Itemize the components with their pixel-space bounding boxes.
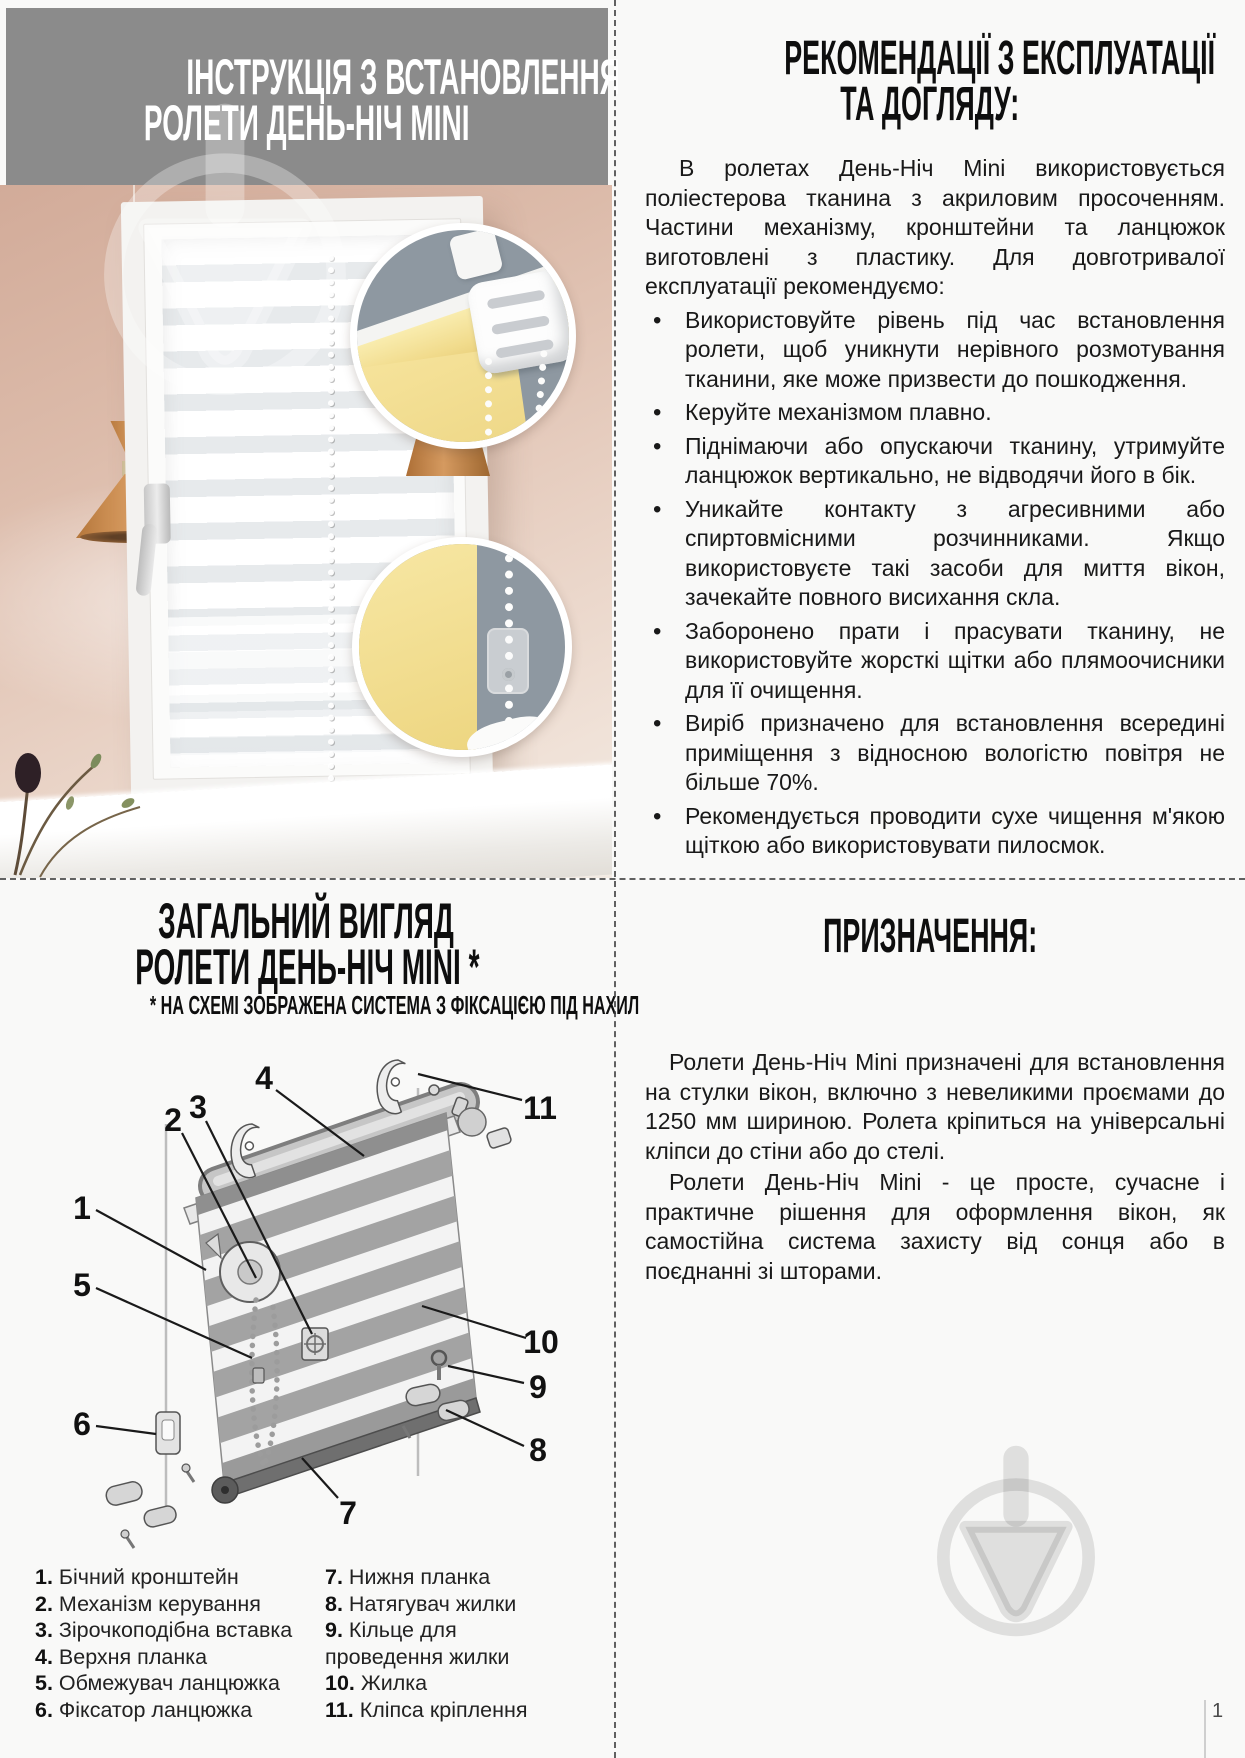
legend-item: 7. Нижня планка	[325, 1564, 565, 1591]
legend-item: 5. Обмежувач ланцюжка	[35, 1670, 320, 1697]
inset2-screw	[502, 668, 515, 681]
page-number: 1	[1212, 1700, 1223, 1723]
legend-column-left: 1. Бічний кронштейн 2. Механізм керуванн…	[35, 1564, 320, 1723]
legend-item: 8. Натягувач жилки	[325, 1591, 565, 1618]
recommendation-bullet: Виріб призначено для встановлення всеред…	[645, 709, 1225, 798]
instruction-title-line1: ІНСТРУКЦІЯ З ВСТАНОВЛЕННЯ	[186, 54, 620, 100]
footer-fold-mark	[1204, 1700, 1206, 1758]
inset-bracket-tab	[448, 227, 503, 281]
recommendation-bullet: Рекомендується проводити сухе чищення м'…	[645, 802, 1225, 861]
legend-item: 1. Бічний кронштейн	[35, 1564, 320, 1591]
recommendations-title: РЕКОМЕНДАЦІЇ З ЕКСПЛУАТАЦІЇ ТА ДОГЛЯДУ:	[615, 36, 1245, 128]
recommendation-bullet: Піднімаючи або опускаючи тканину, утриму…	[645, 432, 1225, 491]
purpose-section: ПРИЗНАЧЕННЯ: Ролети День-Ніч Mini призна…	[615, 878, 1245, 1758]
callout-10: 10	[523, 1324, 559, 1360]
legend-item: 3. Зірочкоподібна вставка	[35, 1617, 320, 1644]
recommendation-bullet: Керуйте механізмом плавно.	[645, 398, 1225, 428]
inset-photo-chain-fixator	[352, 537, 572, 757]
callout-2: 2	[164, 1102, 182, 1138]
callout-3: 3	[189, 1089, 207, 1125]
legend-item: 10. Жилка	[325, 1670, 565, 1697]
general-view-section: ЗАГАЛЬНИЙ ВИГЛЯД РОЛЕТИ ДЕНЬ-НІЧ MINI * …	[0, 878, 613, 1758]
purpose-paragraph-1: Ролети День-Ніч Mini призначені для вста…	[645, 1048, 1225, 1166]
general-view-title-line1: ЗАГАЛЬНИЙ ВИГЛЯД	[159, 898, 455, 944]
general-view-title: ЗАГАЛЬНИЙ ВИГЛЯД РОЛЕТИ ДЕНЬ-НІЧ MINI *	[0, 898, 613, 990]
recommendations-intro: В ролетах День-Ніч Mini використовується…	[645, 154, 1225, 302]
recommendations-list: Використовуйте рівень під час встановлен…	[645, 306, 1225, 861]
recommendation-bullet: Використовуйте рівень під час встановлен…	[645, 306, 1225, 395]
instruction-leaflet-page: ІНСТРУКЦІЯ З ВСТАНОВЛЕННЯ РОЛЕТИ ДЕНЬ-НІ…	[0, 0, 1245, 1758]
watermark-trowel-logo	[931, 1444, 1101, 1640]
window-handle	[144, 483, 171, 543]
purpose-title: ПРИЗНАЧЕННЯ:	[615, 914, 1245, 960]
inset-photo-mechanism	[350, 223, 576, 449]
callout-9: 9	[529, 1369, 547, 1405]
callout-7: 7	[339, 1495, 357, 1531]
recommendations-title-line1: РЕКОМЕНДАЦІЇ З ЕКСПЛУАТАЦІЇ	[784, 36, 1215, 82]
instruction-header: ІНСТРУКЦІЯ З ВСТАНОВЛЕННЯ РОЛЕТИ ДЕНЬ-НІ…	[6, 8, 608, 185]
legend-column-right: 7. Нижня планка 8. Натягувач жилки 9. Кі…	[325, 1564, 565, 1723]
recommendations-title-line2: ТА ДОГЛЯДУ:	[841, 82, 1020, 128]
recommendation-bullet: Уникайте контакту з агресивними або спир…	[645, 495, 1225, 613]
plant-twigs	[0, 725, 210, 878]
general-view-subtitle: * НА СХЕМІ ЗОБРАЖЕНА СИСТЕМА З ФІКСАЦІЄЮ…	[0, 992, 613, 1018]
recommendation-bullet: Заборонено прати і прасувати тканину, не…	[645, 617, 1225, 706]
inset-control-mechanism	[466, 268, 576, 375]
inset2-yellow-fabric	[359, 544, 477, 757]
installation-photo-section: ІНСТРУКЦІЯ З ВСТАНОВЛЕННЯ РОЛЕТИ ДЕНЬ-НІ…	[0, 0, 612, 878]
legend-item: 2. Механізм керування	[35, 1591, 320, 1618]
legend-item: 4. Верхня планка	[35, 1644, 320, 1671]
window-photo	[0, 185, 612, 878]
cut-line-horizontal	[0, 878, 1245, 880]
callout-8: 8	[529, 1432, 547, 1468]
general-view-title-line2: РОЛЕТИ ДЕНЬ-НІЧ MINI *	[135, 944, 479, 990]
blind-bead-chain	[328, 255, 334, 830]
callout-11: 11	[523, 1090, 557, 1126]
callout-6: 6	[73, 1406, 91, 1442]
legend-item: 9. Кільце для проведення жилки	[325, 1617, 565, 1670]
instruction-title-line2: РОЛЕТИ ДЕНЬ-НІЧ MINI	[144, 100, 470, 146]
legend-item: 11. Кліпса кріплення	[325, 1697, 565, 1724]
recommendations-section: РЕКОМЕНДАЦІЇ З ЕКСПЛУАТАЦІЇ ТА ДОГЛЯДУ: …	[615, 0, 1245, 878]
callout-5: 5	[73, 1267, 91, 1303]
callout-4: 4	[255, 1060, 273, 1096]
inset2-chain-fixator	[487, 628, 529, 694]
callout-1: 1	[73, 1190, 91, 1226]
legend-item: 6. Фіксатор ланцюжка	[35, 1697, 320, 1724]
purpose-paragraph-2: Ролети День-Ніч Mini - це просте, сучасн…	[645, 1168, 1225, 1286]
inset-bead-chain	[485, 358, 492, 449]
blind-exploded-diagram: 1 2 3 4 5 6 7 8 9 10 11	[56, 1038, 561, 1563]
